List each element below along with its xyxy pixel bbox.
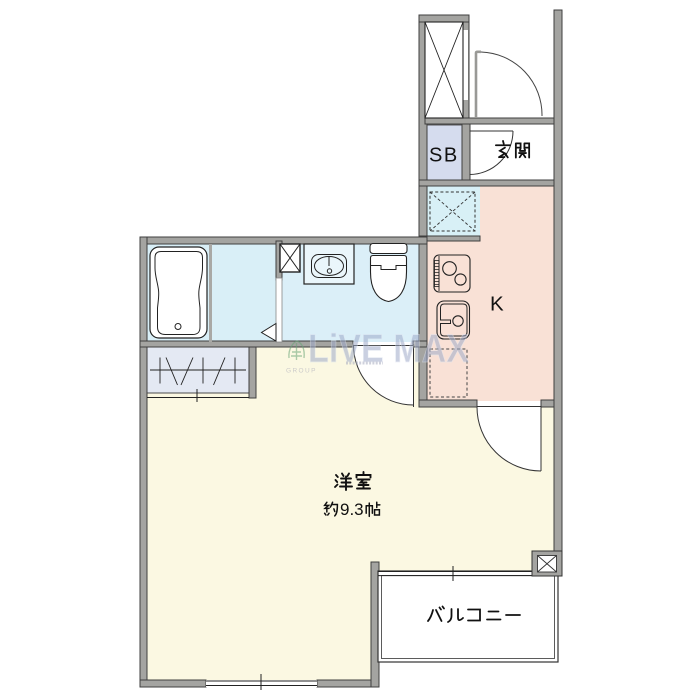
svg-text:SB: SB [429,145,459,167]
svg-text:LiVE MAX: LiVE MAX [308,327,469,371]
svg-text:K: K [490,293,504,316]
svg-text:GROUP: GROUP [286,368,317,375]
svg-text:9.3: 9.3 [340,500,364,519]
